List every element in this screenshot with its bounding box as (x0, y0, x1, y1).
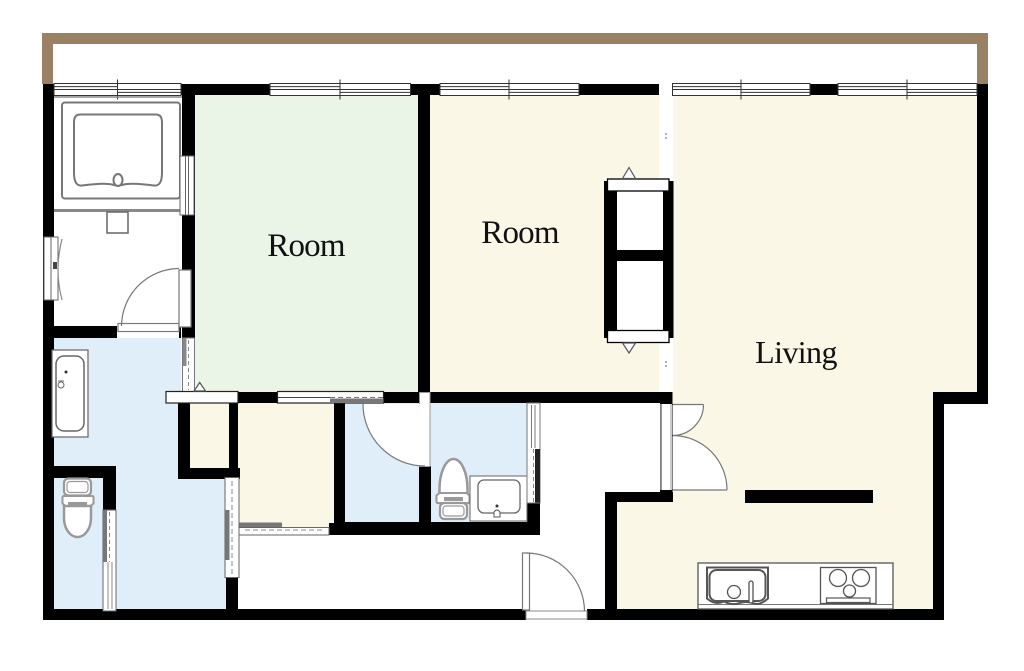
svg-text:Room: Room (267, 228, 346, 264)
svg-text:Room: Room (481, 215, 560, 251)
svg-text:Living: Living (755, 334, 837, 370)
